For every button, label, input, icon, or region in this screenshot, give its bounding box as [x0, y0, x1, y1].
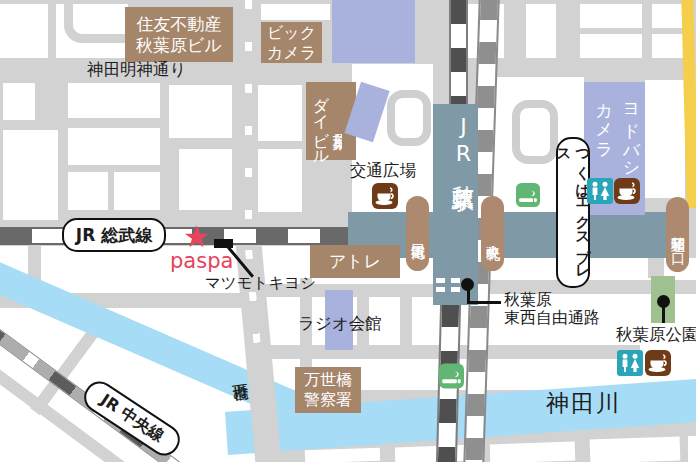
tsukuba-express-label: つくばエクスプレス [556, 137, 590, 288]
rotary-loop [512, 100, 558, 164]
city-block [490, 442, 576, 462]
radio-kaikan-label: ラジオ会館 [298, 315, 382, 332]
rail-track [449, 0, 468, 105]
building-manseibashi-police: 万世橋 警察署 [295, 367, 361, 413]
street [400, 284, 412, 346]
coffee-icon [372, 183, 398, 209]
building-atre: アトレ [310, 245, 400, 278]
station-label: JR秋葉原駅 [433, 114, 478, 176]
gate-central: 中央改札 [481, 196, 504, 271]
gate-showa-dori: 昭和通り口 [666, 197, 689, 272]
city-block [305, 448, 380, 462]
city-block [526, 4, 556, 58]
park-marker-stem [662, 305, 665, 323]
street [648, 258, 664, 278]
smoking-icon [516, 183, 540, 207]
city-block [3, 130, 58, 220]
smoking-icon [439, 363, 464, 389]
city-block [652, 34, 683, 58]
coffee-icon [614, 178, 640, 204]
kanda-river-label: 神田川 [546, 391, 621, 415]
city-block [169, 85, 232, 138]
gate-electric-town: 電気街口 [406, 196, 429, 271]
matsumoto-kiyoshi-label: マツモトキヨシ [205, 275, 316, 291]
rotary-loop [387, 90, 431, 146]
paspa-label: paspa [170, 250, 233, 272]
city-block [179, 149, 232, 210]
city-block [261, 4, 330, 20]
matsumoto-kiyoshi-marker [214, 239, 233, 248]
coffee-icon [645, 350, 671, 376]
street-centerline [245, 0, 252, 228]
city-block [68, 128, 160, 165]
building-bic-camera: ビック カメラ [261, 22, 322, 63]
star-marker: ★ [183, 222, 210, 252]
city-block [3, 83, 35, 120]
traffic-plaza-label: 交通広場 [350, 162, 416, 179]
city-block [652, 4, 683, 28]
akihabara-area-map: JR秋葉原駅 住友不動産 秋葉原ビル ビック カメラ 秋葉原 ダイビル アトレ … [0, 0, 696, 462]
connector-line [467, 301, 501, 304]
city-block [114, 172, 160, 210]
city-block [580, 34, 642, 58]
akihabara-station: JR秋葉原駅 [433, 104, 478, 305]
restroom-icon [587, 178, 613, 204]
building-periwinkle-large [332, 0, 415, 63]
free-passage-label: 秋葉原 東西自由通路 [504, 291, 600, 326]
sobu-line-track [0, 227, 352, 245]
akihabara-park-label: 秋葉原公園 [616, 326, 696, 343]
restroom-icon [617, 350, 643, 376]
city-block [590, 436, 681, 462]
kanda-myojin-dori-label: 神田明神通り [87, 61, 186, 78]
city-block [580, 4, 642, 28]
city-block [258, 85, 302, 141]
city-block [0, 4, 48, 58]
city-block [645, 80, 685, 198]
city-block [68, 83, 160, 118]
city-block [68, 172, 108, 210]
city-block [258, 149, 302, 212]
city-block [688, 436, 696, 462]
sobu-line-label: JR 総武線 [62, 218, 166, 252]
building-sumitomo: 住友不動産 秋葉原ビル [125, 7, 233, 62]
street-centerline [245, 250, 261, 345]
